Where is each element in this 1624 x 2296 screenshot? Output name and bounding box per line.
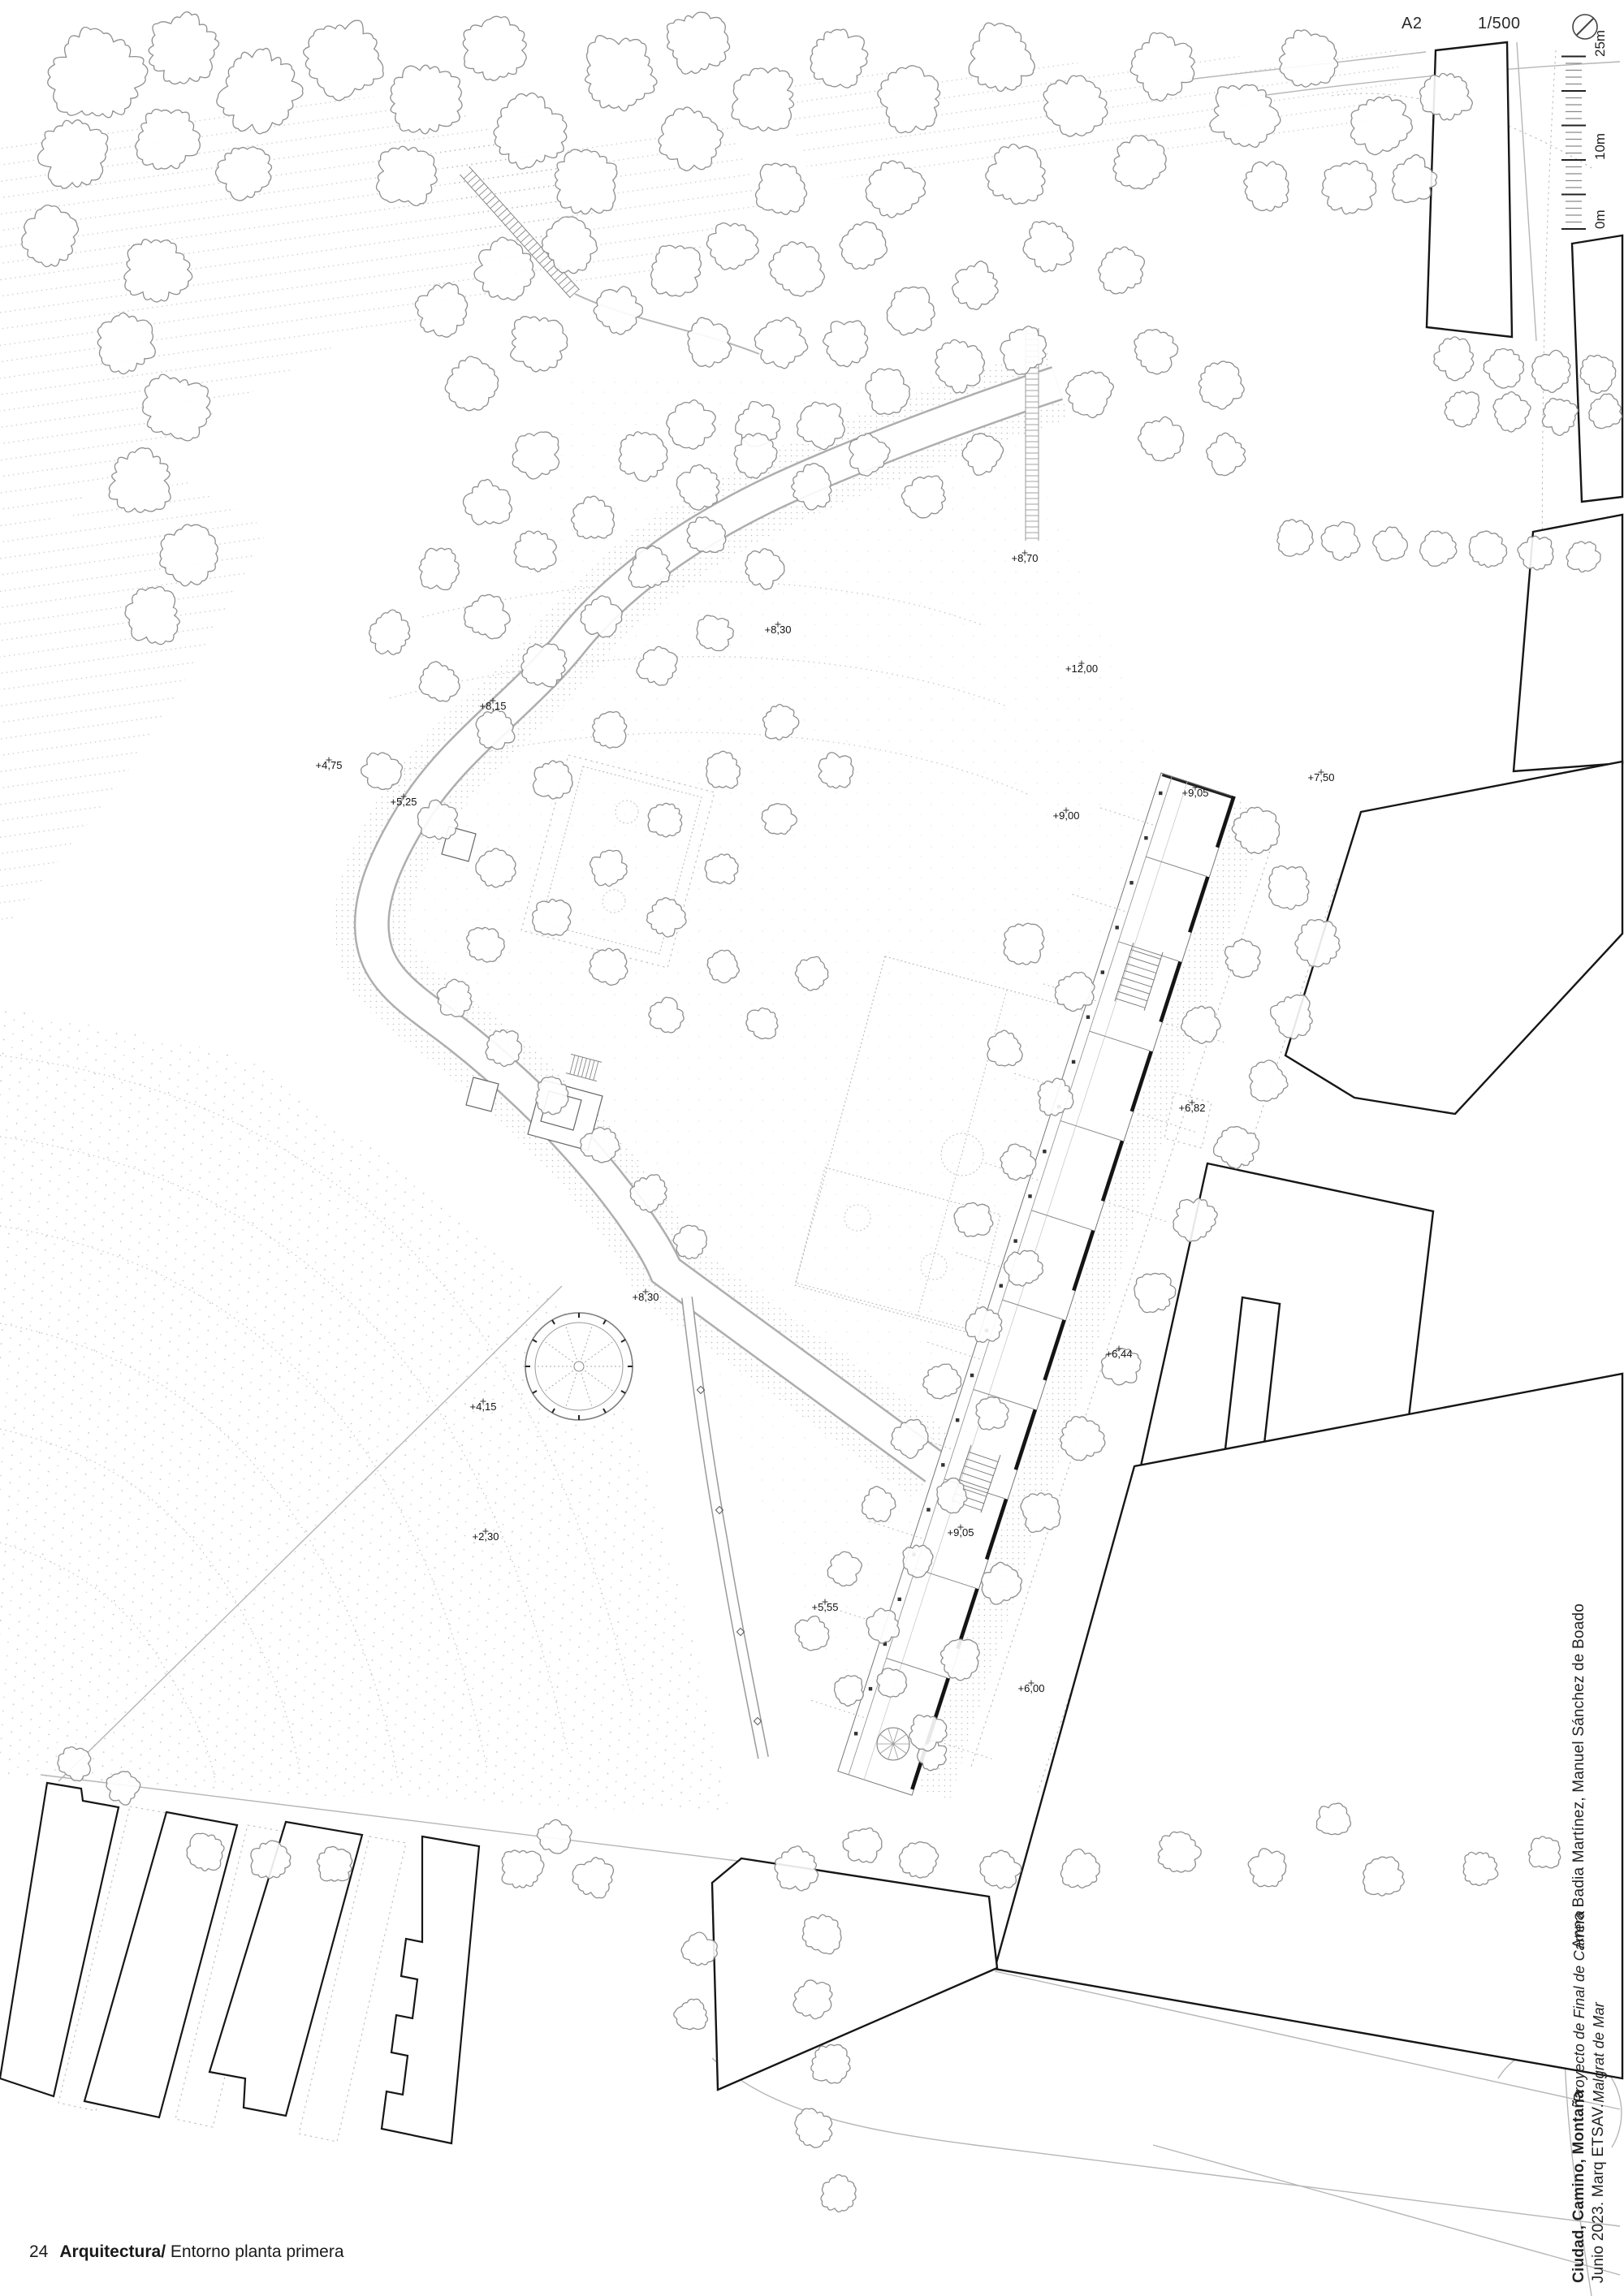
footer-subtitle: Entorno planta primera bbox=[171, 2242, 344, 2261]
site-plan: +8,70+8,30+12,00+8,15+4,75+5,25+9,05+9,0… bbox=[0, 0, 1624, 2296]
tree-canopy bbox=[1066, 371, 1114, 417]
tree-canopy bbox=[1542, 399, 1578, 436]
footer-section: Arquitectura/ bbox=[59, 2242, 166, 2261]
tree-canopy bbox=[980, 1850, 1021, 1888]
tree-canopy bbox=[37, 120, 107, 188]
column bbox=[1013, 1239, 1017, 1242]
tree-canopy bbox=[1244, 162, 1289, 211]
tree-canopy bbox=[667, 12, 729, 74]
column bbox=[1072, 1060, 1075, 1064]
column bbox=[1129, 881, 1133, 884]
tree-canopy bbox=[304, 20, 384, 101]
tree-canopy bbox=[1393, 155, 1437, 203]
tree-canopy bbox=[1445, 391, 1479, 427]
tree-canopy bbox=[769, 242, 824, 296]
column bbox=[941, 1463, 944, 1466]
tree-canopy bbox=[143, 374, 211, 441]
tree-canopy bbox=[732, 68, 793, 131]
tree-canopy bbox=[952, 261, 998, 310]
column bbox=[1043, 1150, 1046, 1153]
circular-plaza bbox=[525, 1313, 633, 1420]
sheet-format-label: A2 bbox=[1402, 15, 1422, 33]
elevation-label: +12,00 bbox=[1065, 662, 1098, 675]
tree-canopy bbox=[537, 1819, 572, 1854]
credit-title: Ciudad, Camino, Montaña bbox=[1570, 2090, 1588, 2283]
tree-canopy bbox=[464, 594, 511, 638]
elevation-label: +6,82 bbox=[1179, 1102, 1206, 1114]
column bbox=[970, 1374, 974, 1377]
elevation-label: +5,25 bbox=[391, 796, 417, 808]
north-arrow-and-scale-bar: 0m10m25m bbox=[1561, 15, 1608, 229]
elevation-label: +8,70 bbox=[1012, 552, 1039, 564]
column bbox=[898, 1598, 901, 1601]
orchard-rows-field bbox=[0, 481, 268, 935]
tree-canopy bbox=[1321, 522, 1360, 561]
column bbox=[1115, 926, 1118, 929]
tree-canopy bbox=[572, 1858, 613, 1898]
tree-canopy bbox=[1134, 1273, 1176, 1312]
elevation-label: +6,44 bbox=[1106, 1348, 1133, 1360]
elevation-label: +4,15 bbox=[470, 1400, 497, 1413]
column bbox=[956, 1418, 959, 1422]
elevation-label: +2,30 bbox=[473, 1530, 499, 1543]
tree-canopy bbox=[1004, 923, 1044, 965]
tree-canopy bbox=[651, 245, 702, 296]
tree-canopy bbox=[1023, 222, 1073, 272]
tree-canopy bbox=[502, 1850, 544, 1888]
page-number: 24 bbox=[29, 2242, 48, 2262]
tree-canopy bbox=[900, 1842, 939, 1878]
tree-canopy bbox=[533, 900, 572, 936]
tree-canopy bbox=[648, 803, 682, 836]
elevation-label: +8,30 bbox=[633, 1291, 659, 1303]
tree-canopy bbox=[954, 1202, 993, 1236]
tree-canopy bbox=[463, 480, 512, 525]
tree-canopy bbox=[1528, 1836, 1560, 1868]
tree-canopy bbox=[754, 317, 807, 369]
tree-canopy bbox=[369, 610, 410, 654]
column bbox=[869, 1687, 872, 1690]
tree-canopy bbox=[149, 12, 218, 84]
tree-canopy bbox=[125, 587, 179, 645]
tree-canopy bbox=[445, 356, 498, 411]
tree-canopy bbox=[1518, 536, 1553, 570]
city-block bbox=[995, 1374, 1622, 2078]
tree-canopy bbox=[681, 1932, 717, 1966]
tree-canopy bbox=[1280, 30, 1338, 87]
column bbox=[1159, 792, 1162, 795]
tree-canopy bbox=[1373, 527, 1408, 561]
scale-bar-label: 0m bbox=[1592, 209, 1608, 229]
housing-slab bbox=[382, 1836, 479, 2143]
tree-canopy bbox=[755, 163, 806, 214]
column bbox=[854, 1732, 857, 1735]
tree-canopy bbox=[1434, 337, 1474, 381]
tree-canopy bbox=[1271, 995, 1313, 1038]
tree-canopy bbox=[1532, 350, 1570, 392]
tree-canopy bbox=[1277, 520, 1313, 556]
tree-canopy bbox=[811, 2044, 850, 2083]
tree-canopy bbox=[1469, 531, 1506, 568]
elevation-label: +8,30 bbox=[765, 624, 792, 636]
tree-canopy bbox=[688, 317, 732, 367]
tree-canopy bbox=[1268, 865, 1309, 909]
tree-canopy bbox=[1138, 416, 1184, 460]
north-arrow-needle bbox=[1577, 19, 1593, 35]
tree-canopy bbox=[887, 287, 935, 334]
credit-date: Junio 2023. Marq ETSAV. bbox=[1590, 2104, 1608, 2283]
tree-canopy bbox=[1350, 97, 1412, 155]
tree-canopy bbox=[795, 2108, 832, 2147]
elevation-label: +7,50 bbox=[1308, 771, 1335, 783]
tree-canopy bbox=[585, 36, 657, 111]
sheet-scale-label: 1/500 bbox=[1478, 15, 1521, 33]
elevation-label: +9,05 bbox=[948, 1526, 974, 1539]
elevation-label: +8,15 bbox=[480, 700, 507, 712]
column bbox=[926, 1508, 930, 1511]
tree-canopy bbox=[697, 615, 733, 651]
tree-canopy bbox=[840, 222, 887, 269]
column bbox=[1028, 1194, 1031, 1198]
scale-bar-label: 25m bbox=[1592, 30, 1608, 57]
tree-canopy bbox=[48, 27, 148, 117]
tree-canopy bbox=[1134, 330, 1178, 374]
drawing-sheet: +8,70+8,30+12,00+8,15+4,75+5,25+9,05+9,0… bbox=[0, 0, 1624, 2296]
tree-canopy bbox=[419, 662, 460, 701]
tree-canopy bbox=[361, 753, 403, 789]
tree-canopy bbox=[1199, 361, 1244, 409]
tree-canopy bbox=[511, 317, 568, 372]
tree-canopy bbox=[1021, 1493, 1060, 1533]
elevation-label: +9,00 bbox=[1053, 809, 1080, 822]
tree-canopy bbox=[1099, 247, 1145, 294]
tree-canopy bbox=[1493, 392, 1531, 432]
city-block bbox=[712, 1858, 997, 2090]
tree-canopy bbox=[823, 321, 868, 367]
tree-canopy bbox=[1214, 1127, 1259, 1169]
tree-canopy bbox=[1484, 348, 1523, 388]
tree-canopy bbox=[594, 287, 642, 334]
column bbox=[1144, 836, 1147, 839]
tree-canopy bbox=[821, 2175, 856, 2212]
tree-canopy bbox=[419, 548, 459, 589]
street-line bbox=[1517, 42, 1536, 341]
elevation-label: +4,75 bbox=[316, 759, 343, 771]
tree-canopy bbox=[1060, 1417, 1105, 1461]
tree-canopy bbox=[391, 65, 462, 134]
scale-bar-label: 10m bbox=[1592, 133, 1608, 160]
column bbox=[1000, 1284, 1003, 1288]
tree-canopy bbox=[1420, 531, 1457, 566]
column bbox=[1101, 970, 1104, 973]
tree-canopy bbox=[1322, 161, 1376, 214]
plaza-outer-ring bbox=[525, 1313, 633, 1420]
footer-caption: 24 Arquitectura/ Entorno planta primera bbox=[29, 2242, 344, 2262]
tree-canopy bbox=[843, 1828, 882, 1862]
credit-project: Proyecto de Final de Carrera bbox=[1571, 1910, 1588, 2103]
column bbox=[1086, 1016, 1090, 1019]
tree-canopy bbox=[463, 16, 526, 80]
tree-canopy bbox=[1207, 433, 1246, 475]
elevation-label: +6,00 bbox=[1018, 1682, 1045, 1694]
credit-authors: Anna Badia Martínez, Manuel Sánchez de B… bbox=[1570, 1603, 1588, 1949]
tree-canopy bbox=[674, 1999, 708, 2029]
elevation-label: +9,05 bbox=[1182, 787, 1209, 799]
street-line bbox=[1153, 2145, 1620, 2275]
tree-canopy bbox=[1249, 1060, 1288, 1101]
tree-canopy bbox=[1316, 1803, 1350, 1835]
credit-location: Malgrat de Mar bbox=[1591, 2002, 1608, 2103]
elevation-label: +5,55 bbox=[812, 1601, 839, 1613]
